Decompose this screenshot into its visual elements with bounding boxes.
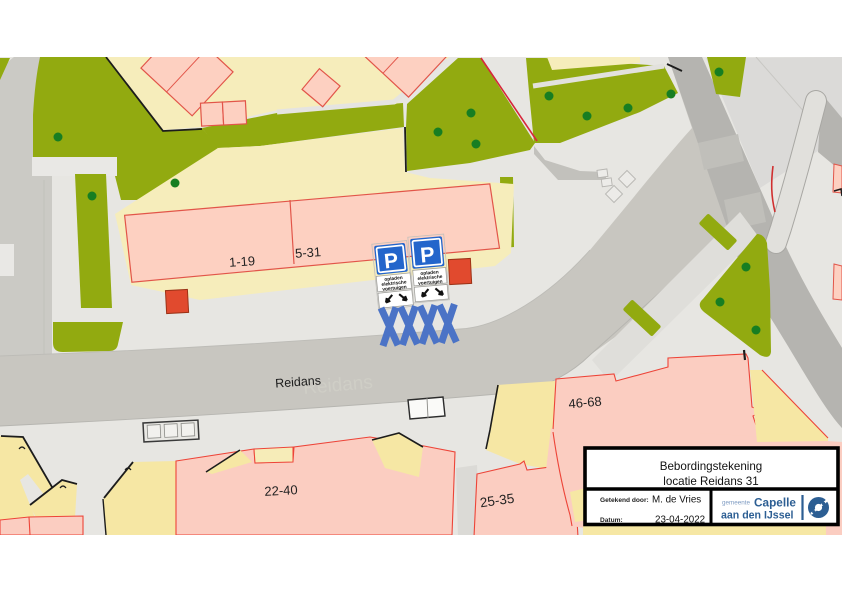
svg-text:Datum:: Datum: (600, 517, 623, 524)
svg-text:gemeente: gemeente (722, 500, 751, 507)
svg-text:Capelle: Capelle (754, 496, 796, 510)
svg-text:aan den IJssel: aan den IJssel (721, 510, 793, 522)
svg-text:P: P (419, 242, 435, 267)
svg-text:1-19: 1-19 (229, 253, 256, 270)
svg-text:5-31: 5-31 (295, 244, 322, 261)
svg-text:22-40: 22-40 (264, 482, 298, 499)
svg-text:23-04-2022: 23-04-2022 (655, 515, 705, 526)
svg-text:locatie Reidans 31: locatie Reidans 31 (663, 475, 758, 488)
svg-text:M. de Vries: M. de Vries (652, 495, 701, 506)
svg-text:Getekend door:: Getekend door: (600, 497, 649, 504)
svg-text:Bebordingstekening: Bebordingstekening (660, 460, 763, 473)
svg-text:46-68: 46-68 (568, 394, 602, 412)
svg-text:P: P (383, 249, 399, 273)
